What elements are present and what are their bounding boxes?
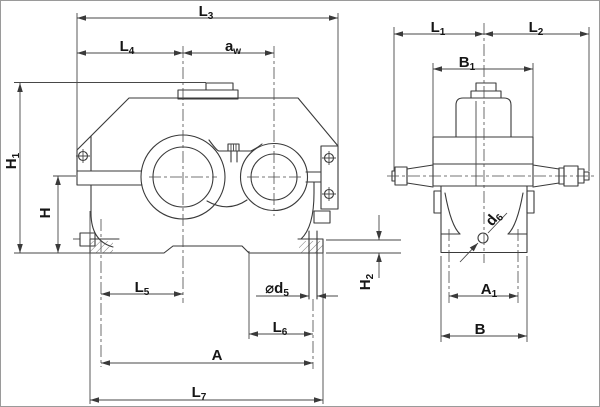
dimension-H2 (376, 215, 382, 278)
side-tab-right (527, 191, 534, 213)
bearing-bell (456, 98, 511, 137)
dim-label-l5: L5 (135, 279, 150, 298)
technical-drawing-page: L3 L4 aw H1 H L5 ⌀d5 L6 A L7 H2 L1 L2 B1… (0, 0, 600, 407)
dim-label-h1: H1 (3, 152, 22, 169)
flange-bolt-left (76, 149, 90, 163)
foot-pad-right-hatch (299, 241, 323, 253)
dimension-L7 (90, 397, 323, 403)
plug-right (314, 211, 330, 223)
dim-label-l4: L4 (120, 38, 135, 57)
dim-label-a: A (212, 347, 223, 364)
gear-reducer-drawing: L3 L4 aw H1 H L5 ⌀d5 L6 A L7 H2 L1 L2 B1… (1, 1, 600, 407)
dim-label-l7: L7 (192, 384, 207, 403)
dimension-B1 (433, 66, 533, 72)
dim-label-l2: L2 (529, 19, 544, 38)
dim-label-a1: A1 (481, 281, 498, 300)
side-tab-left (434, 191, 441, 213)
dim-label-l6: L6 (273, 319, 288, 338)
dim-label-h: H (37, 208, 54, 219)
dim-label-d6: d6 (482, 207, 506, 231)
top-knob (476, 83, 496, 91)
housing-outline (77, 98, 338, 247)
front-view (14, 13, 401, 404)
front-extension-lines (14, 13, 401, 404)
flange-band (433, 164, 533, 186)
flange-bolt-right-lower (322, 187, 336, 201)
dim-label-l1: L1 (431, 19, 446, 38)
side-housing (433, 83, 534, 253)
dim-label-l3: L3 (199, 3, 214, 22)
flange-bolt-right-upper (322, 151, 336, 165)
top-knob-base (471, 91, 501, 98)
dim-label-b: B (475, 321, 486, 338)
foot-pad-left-hatch (90, 241, 113, 253)
dim-label-h2: H2 (357, 273, 376, 290)
dimension-A (101, 360, 313, 366)
dim-label-b1: B1 (459, 54, 476, 73)
dimension-H (55, 176, 61, 253)
dimension-labels: L3 L4 aw H1 H L5 ⌀d5 L6 A L7 H2 L1 L2 B1… (3, 3, 544, 403)
inspection-cover (178, 83, 238, 99)
side-centerlines (387, 23, 597, 303)
vent-bolt (228, 144, 239, 162)
dim-label-aw: aw (225, 38, 241, 57)
dim-label-d5: ⌀d5 (265, 280, 289, 299)
upper-housing-box (433, 137, 533, 164)
